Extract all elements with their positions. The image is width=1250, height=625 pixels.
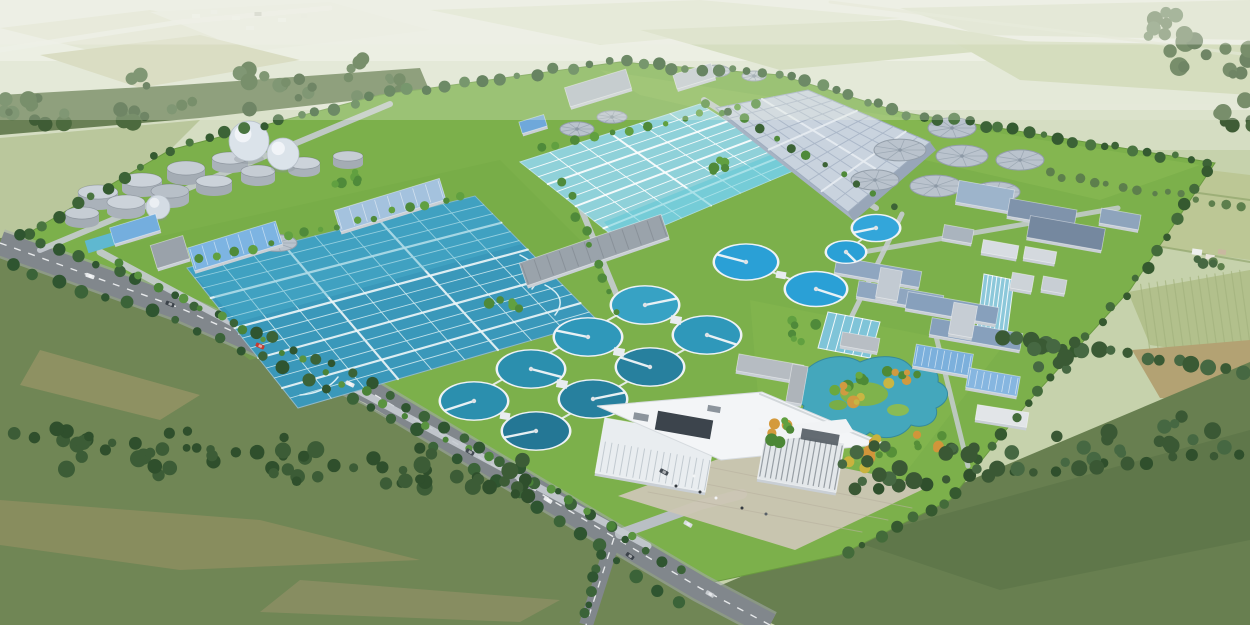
clarifier-teal: [615, 347, 686, 387]
covered-clarifier: [936, 145, 988, 167]
clarifier-teal: [501, 411, 572, 451]
office-building: [1009, 272, 1034, 295]
pedestrian: [675, 485, 678, 488]
pond-island: [887, 404, 909, 416]
clarifier-blue: [825, 240, 868, 264]
covered-clarifier: [874, 139, 926, 161]
sludge-tank: [107, 195, 145, 219]
pedestrian: [715, 497, 718, 500]
pedestrian: [693, 475, 696, 478]
clarifier-blue: [713, 243, 780, 281]
covered-clarifier: [910, 175, 962, 197]
pedestrian: [699, 491, 702, 494]
covered-clarifier: [996, 150, 1044, 170]
sludge-tank: [333, 151, 363, 169]
sludge-tank: [196, 175, 232, 196]
clarifier-blue: [784, 271, 849, 307]
clarifier-teal: [439, 381, 510, 421]
atmospheric-haze-top: [0, 0, 1250, 45]
pedestrian: [741, 507, 744, 510]
aerial-plant-rendering: [0, 0, 1250, 625]
clarifier-teal: [672, 315, 743, 355]
pond-island: [829, 400, 847, 410]
clarifier-teal: [610, 285, 681, 325]
sludge-tank: [65, 207, 99, 228]
pedestrian: [765, 513, 768, 516]
clarifier-teal: [553, 317, 624, 357]
gas-holder-sphere: [267, 138, 299, 173]
scene-container: [0, 0, 1250, 625]
clarifier-blue: [851, 214, 902, 243]
sludge-tank: [241, 165, 275, 186]
clarifier-teal: [496, 349, 567, 389]
covered-tank: [560, 122, 594, 136]
